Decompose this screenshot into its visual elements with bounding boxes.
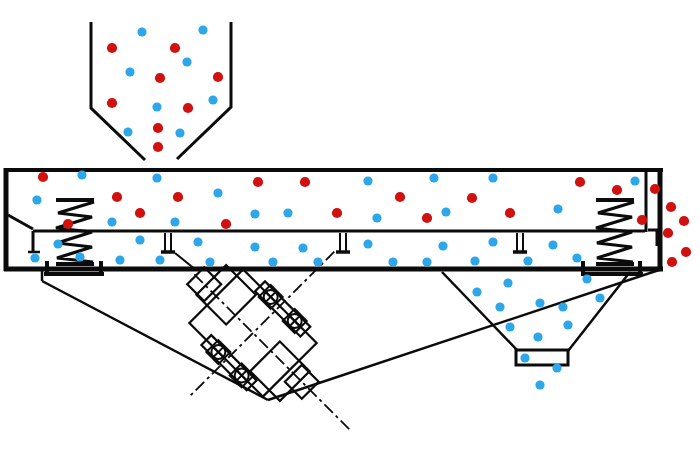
coarse-particle — [107, 43, 117, 53]
fine-particle — [582, 274, 591, 283]
fine-particle — [441, 207, 450, 216]
coarse-particle — [467, 193, 477, 203]
fine-particle — [135, 235, 144, 244]
fine-particle — [363, 176, 372, 185]
frame-right-diagonal — [268, 269, 662, 400]
fine-particle — [298, 243, 307, 252]
coarse-particle — [112, 192, 122, 202]
coarse-particle — [575, 177, 585, 187]
vibration-exciter — [131, 193, 432, 460]
hopper-fine-particles — [123, 25, 217, 137]
coarse-particle — [667, 257, 677, 267]
fine-particle — [213, 188, 222, 197]
hopper-coarse-particles — [107, 43, 223, 152]
fine-particle — [520, 353, 529, 362]
coarse-particle — [153, 123, 163, 133]
fine-particle — [488, 237, 497, 246]
fine-particle — [107, 217, 116, 226]
coarse-particle — [422, 213, 432, 223]
fine-particle — [523, 256, 532, 265]
fine-particle — [572, 253, 581, 262]
fine-particle — [170, 217, 179, 226]
coarse-particle — [395, 192, 405, 202]
coarse-particle — [253, 177, 263, 187]
deck-coarse-particles — [38, 172, 647, 229]
fine-particle — [503, 278, 512, 287]
coarse-particle — [681, 247, 691, 257]
fine-particle — [470, 256, 479, 265]
hopper-left-wall — [91, 22, 145, 160]
frame-left-diagonal — [42, 281, 268, 400]
fine-particle — [429, 173, 438, 182]
fine-particle — [630, 176, 639, 185]
fine-particle — [75, 252, 84, 261]
fine-particle — [548, 240, 557, 249]
fine-particle — [125, 67, 134, 76]
feed-plate — [8, 215, 33, 229]
fine-particle — [77, 170, 86, 179]
fine-particle — [552, 363, 561, 372]
funnel-right-wall — [568, 272, 630, 351]
coarse-particle — [221, 219, 231, 229]
coarse-particle — [135, 208, 145, 218]
fine-particle — [53, 239, 62, 248]
fine-particle — [372, 213, 381, 222]
coarse-particle — [173, 192, 183, 202]
funnel-fine-particles — [472, 274, 604, 389]
fine-particle — [558, 302, 567, 311]
coarse-particle — [153, 142, 163, 152]
deck-fine-particles — [32, 170, 639, 226]
fine-particle — [115, 255, 124, 264]
coarse-particle — [505, 208, 515, 218]
fine-particle — [438, 241, 447, 250]
fine-particle — [175, 128, 184, 137]
fine-particle — [533, 332, 542, 341]
right-step-bracket — [648, 230, 657, 246]
fine-particle — [208, 95, 217, 104]
fine-particle — [363, 239, 372, 248]
fine-particle — [595, 293, 604, 302]
fine-particle — [205, 257, 214, 266]
fine-particle — [193, 237, 202, 246]
coarse-particle — [107, 98, 117, 108]
fine-particle — [250, 242, 259, 251]
fine-particle — [563, 320, 572, 329]
fine-particle — [32, 195, 41, 204]
coarse-particle — [155, 73, 165, 83]
fine-particle — [30, 253, 39, 262]
fine-particle — [535, 380, 544, 389]
fine-particle — [313, 257, 322, 266]
fine-particle — [488, 173, 497, 182]
fine-particle — [553, 204, 562, 213]
vibrating-screen-schematic — [0, 0, 700, 460]
oversize-discharge-particles — [650, 184, 691, 267]
fine-particle — [155, 255, 164, 264]
fine-particle — [472, 287, 481, 296]
fine-particle — [422, 257, 431, 266]
coarse-particle — [183, 103, 193, 113]
coarse-particle — [666, 202, 676, 212]
fine-particle — [123, 127, 132, 136]
vibrating-screen-diagram — [0, 0, 700, 460]
fine-particle — [505, 322, 514, 331]
fine-particle — [535, 298, 544, 307]
coarse-particle — [332, 208, 342, 218]
coarse-particle — [679, 216, 689, 226]
coarse-particle — [612, 185, 622, 195]
fine-particle — [283, 208, 292, 217]
coarse-particle — [63, 219, 73, 229]
coarse-particle — [300, 177, 310, 187]
fine-particle — [268, 257, 277, 266]
coarse-particle — [213, 72, 223, 82]
hopper-right-wall — [177, 22, 231, 159]
coarse-particle — [637, 215, 647, 225]
coarse-particle — [38, 172, 48, 182]
coarse-particle — [663, 228, 673, 238]
under-deck-fine-particles — [30, 235, 581, 266]
fine-particle — [137, 27, 146, 36]
fine-particle — [152, 173, 161, 182]
fine-particle — [388, 257, 397, 266]
fine-particle — [152, 102, 161, 111]
fine-particle — [495, 302, 504, 311]
coarse-particle — [650, 184, 660, 194]
fine-particle — [198, 25, 207, 34]
fine-particle — [250, 209, 259, 218]
fine-particle — [182, 57, 191, 66]
coarse-particle — [170, 43, 180, 53]
